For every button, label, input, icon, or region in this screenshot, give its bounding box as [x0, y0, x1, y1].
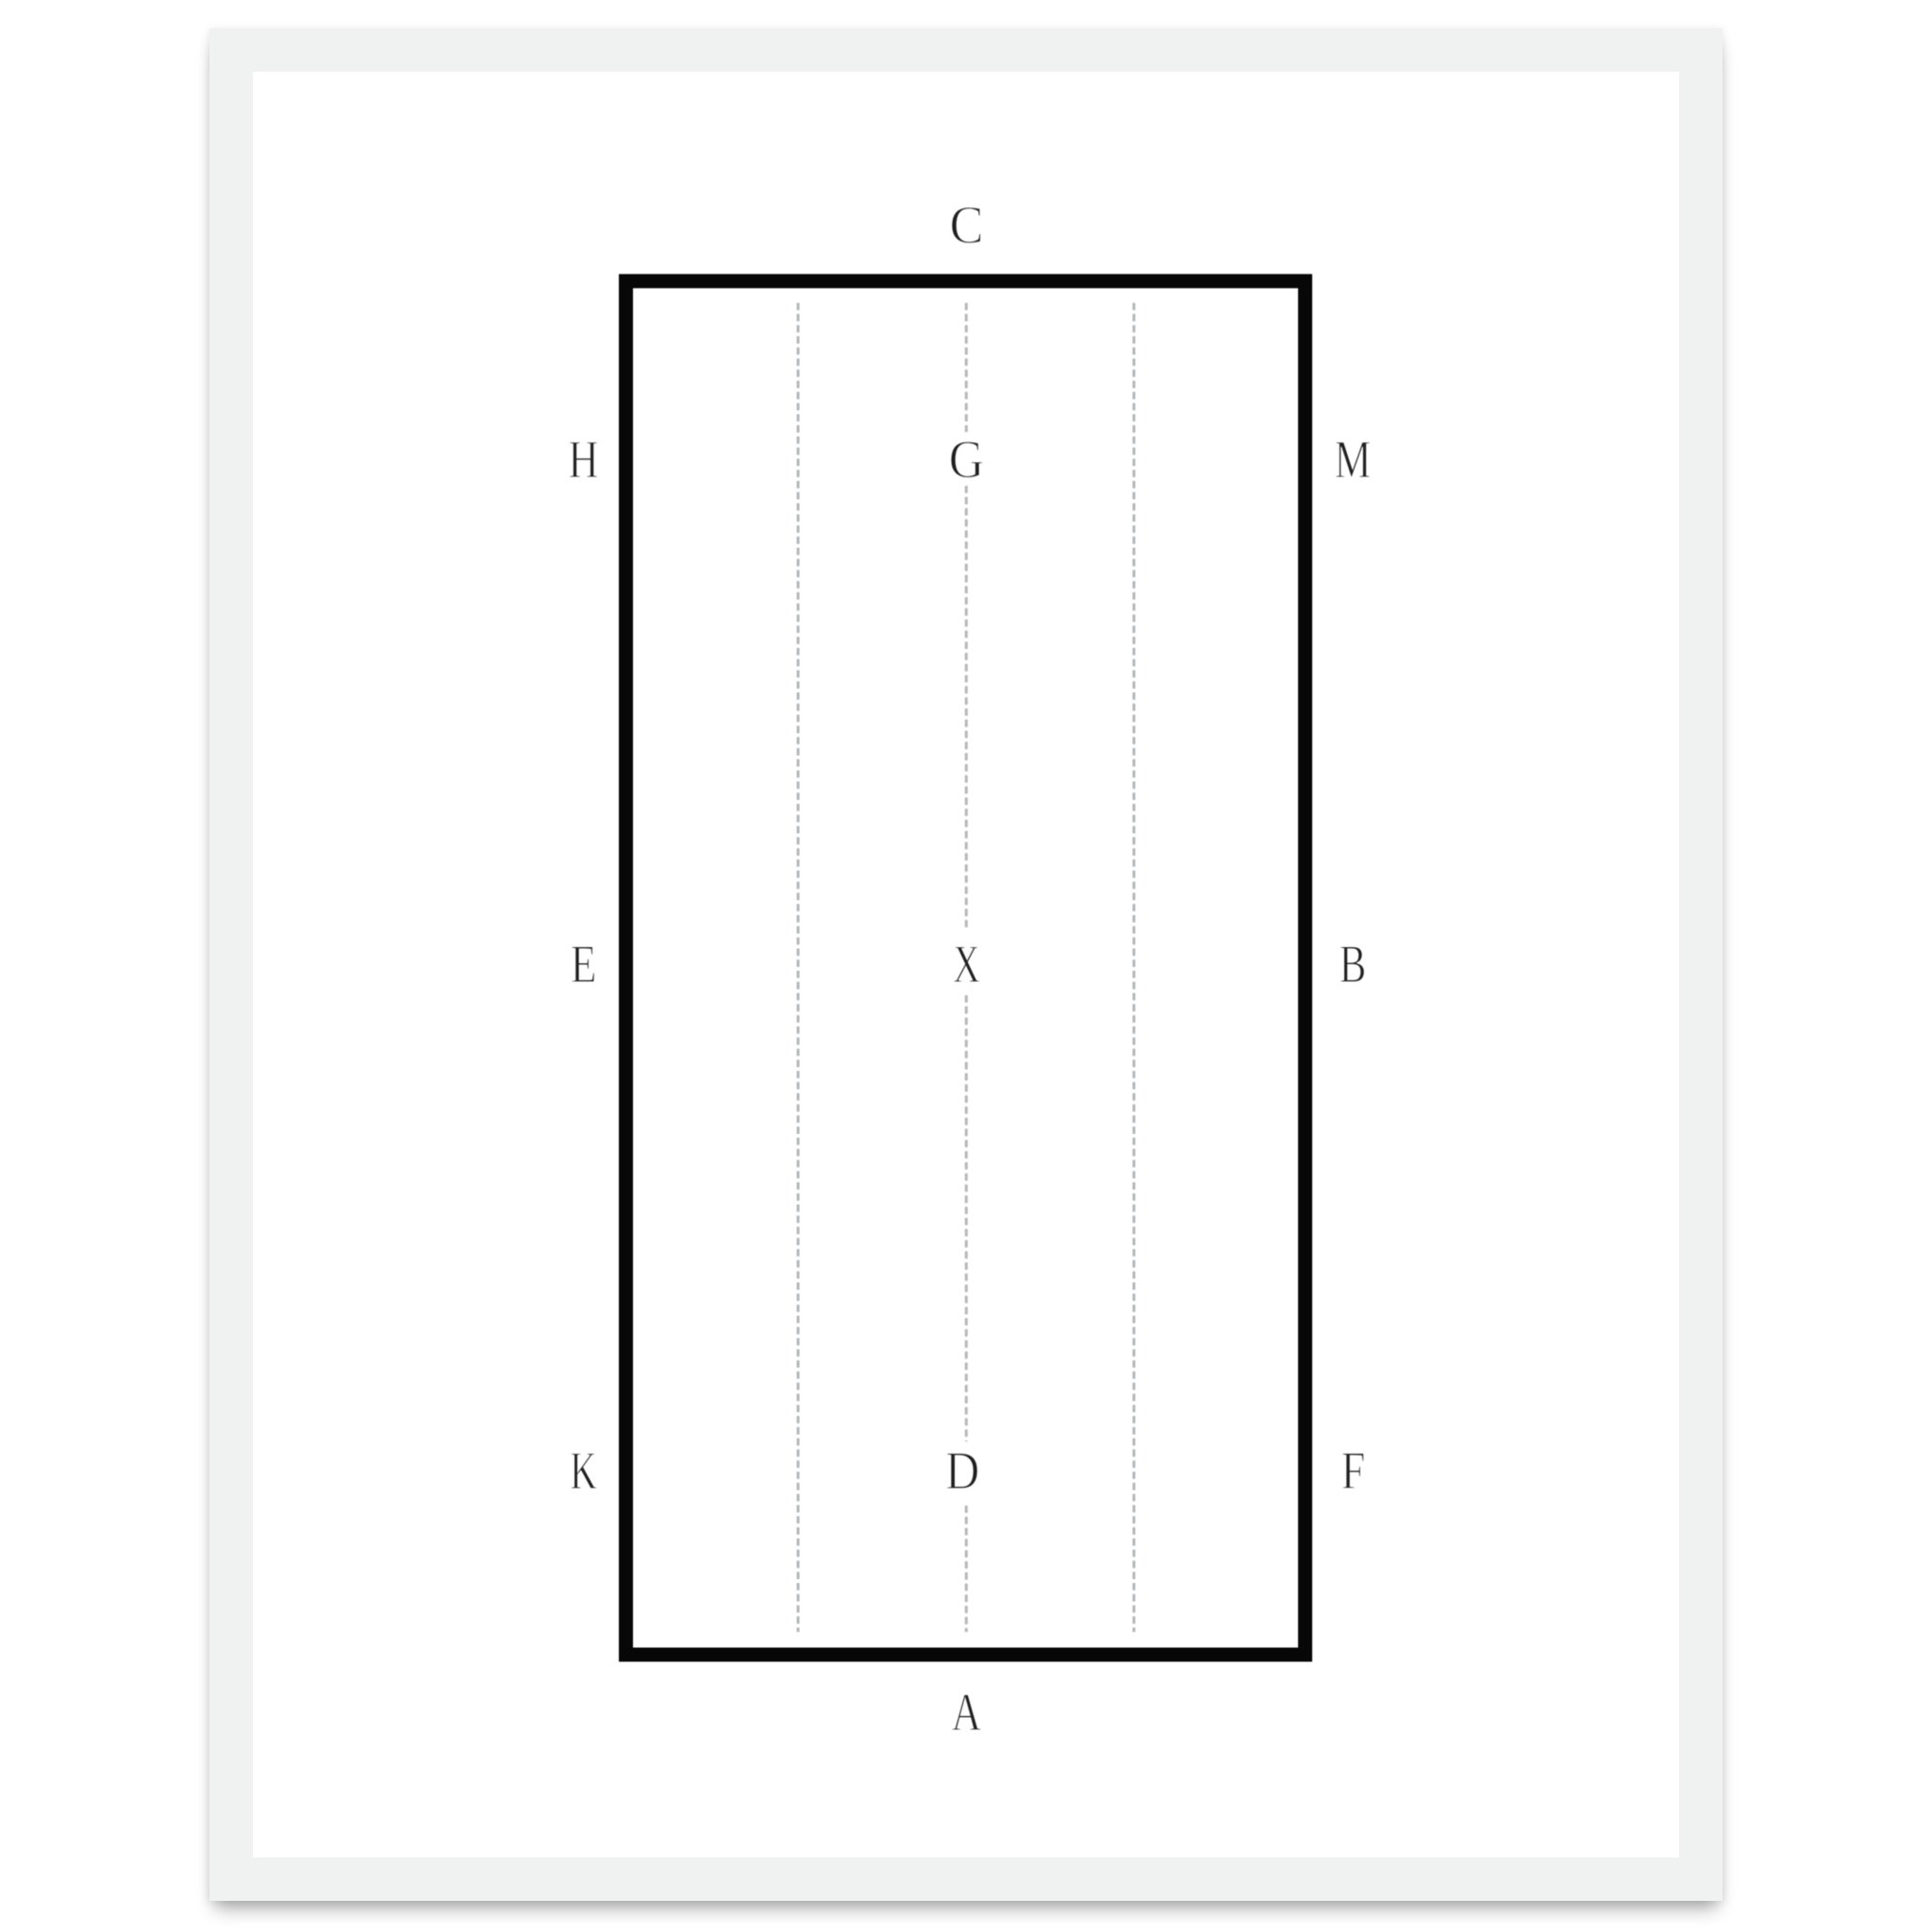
- svg-text:F: F: [1341, 1442, 1366, 1502]
- svg-text:C: C: [949, 195, 983, 256]
- svg-text:B: B: [1340, 934, 1367, 993]
- svg-text:X: X: [953, 934, 980, 994]
- svg-text:D: D: [945, 1441, 979, 1501]
- svg-text:E: E: [571, 935, 597, 994]
- svg-text:H: H: [568, 430, 599, 490]
- svg-text:M: M: [1334, 431, 1371, 491]
- svg-text:G: G: [949, 429, 984, 490]
- svg-text:K: K: [570, 1441, 597, 1501]
- svg-text:A: A: [952, 1684, 982, 1743]
